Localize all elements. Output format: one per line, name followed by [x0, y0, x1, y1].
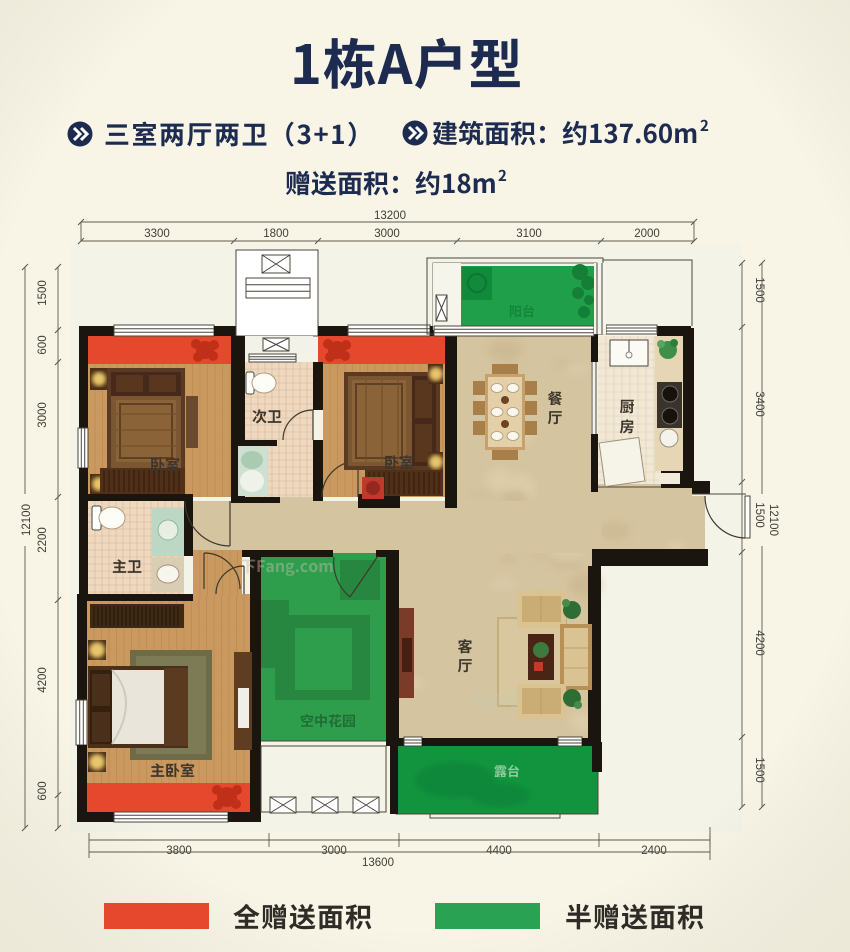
svg-text:600: 600	[37, 781, 49, 800]
svg-text:4200: 4200	[753, 630, 765, 656]
svg-text:1500: 1500	[37, 280, 49, 306]
svg-text:12100: 12100	[21, 504, 33, 536]
svg-text:3100: 3100	[516, 228, 542, 240]
svg-text:1800: 1800	[263, 228, 289, 240]
svg-text:13600: 13600	[362, 857, 394, 869]
svg-text:1500: 1500	[753, 757, 765, 783]
svg-text:3000: 3000	[37, 402, 49, 428]
svg-text:600: 600	[37, 335, 49, 354]
svg-text:2200: 2200	[37, 527, 49, 553]
svg-text:13200: 13200	[374, 210, 406, 222]
svg-text:1500: 1500	[753, 277, 765, 303]
svg-text:1500: 1500	[753, 502, 765, 528]
svg-text:2400: 2400	[641, 845, 667, 857]
svg-text:12100: 12100	[767, 504, 779, 536]
svg-text:3400: 3400	[753, 391, 765, 417]
svg-text:2000: 2000	[634, 228, 660, 240]
svg-text:3000: 3000	[374, 228, 400, 240]
svg-text:3800: 3800	[166, 845, 192, 857]
svg-text:4400: 4400	[486, 845, 512, 857]
svg-text:3000: 3000	[321, 845, 347, 857]
svg-text:4200: 4200	[37, 667, 49, 693]
svg-text:3300: 3300	[144, 228, 170, 240]
